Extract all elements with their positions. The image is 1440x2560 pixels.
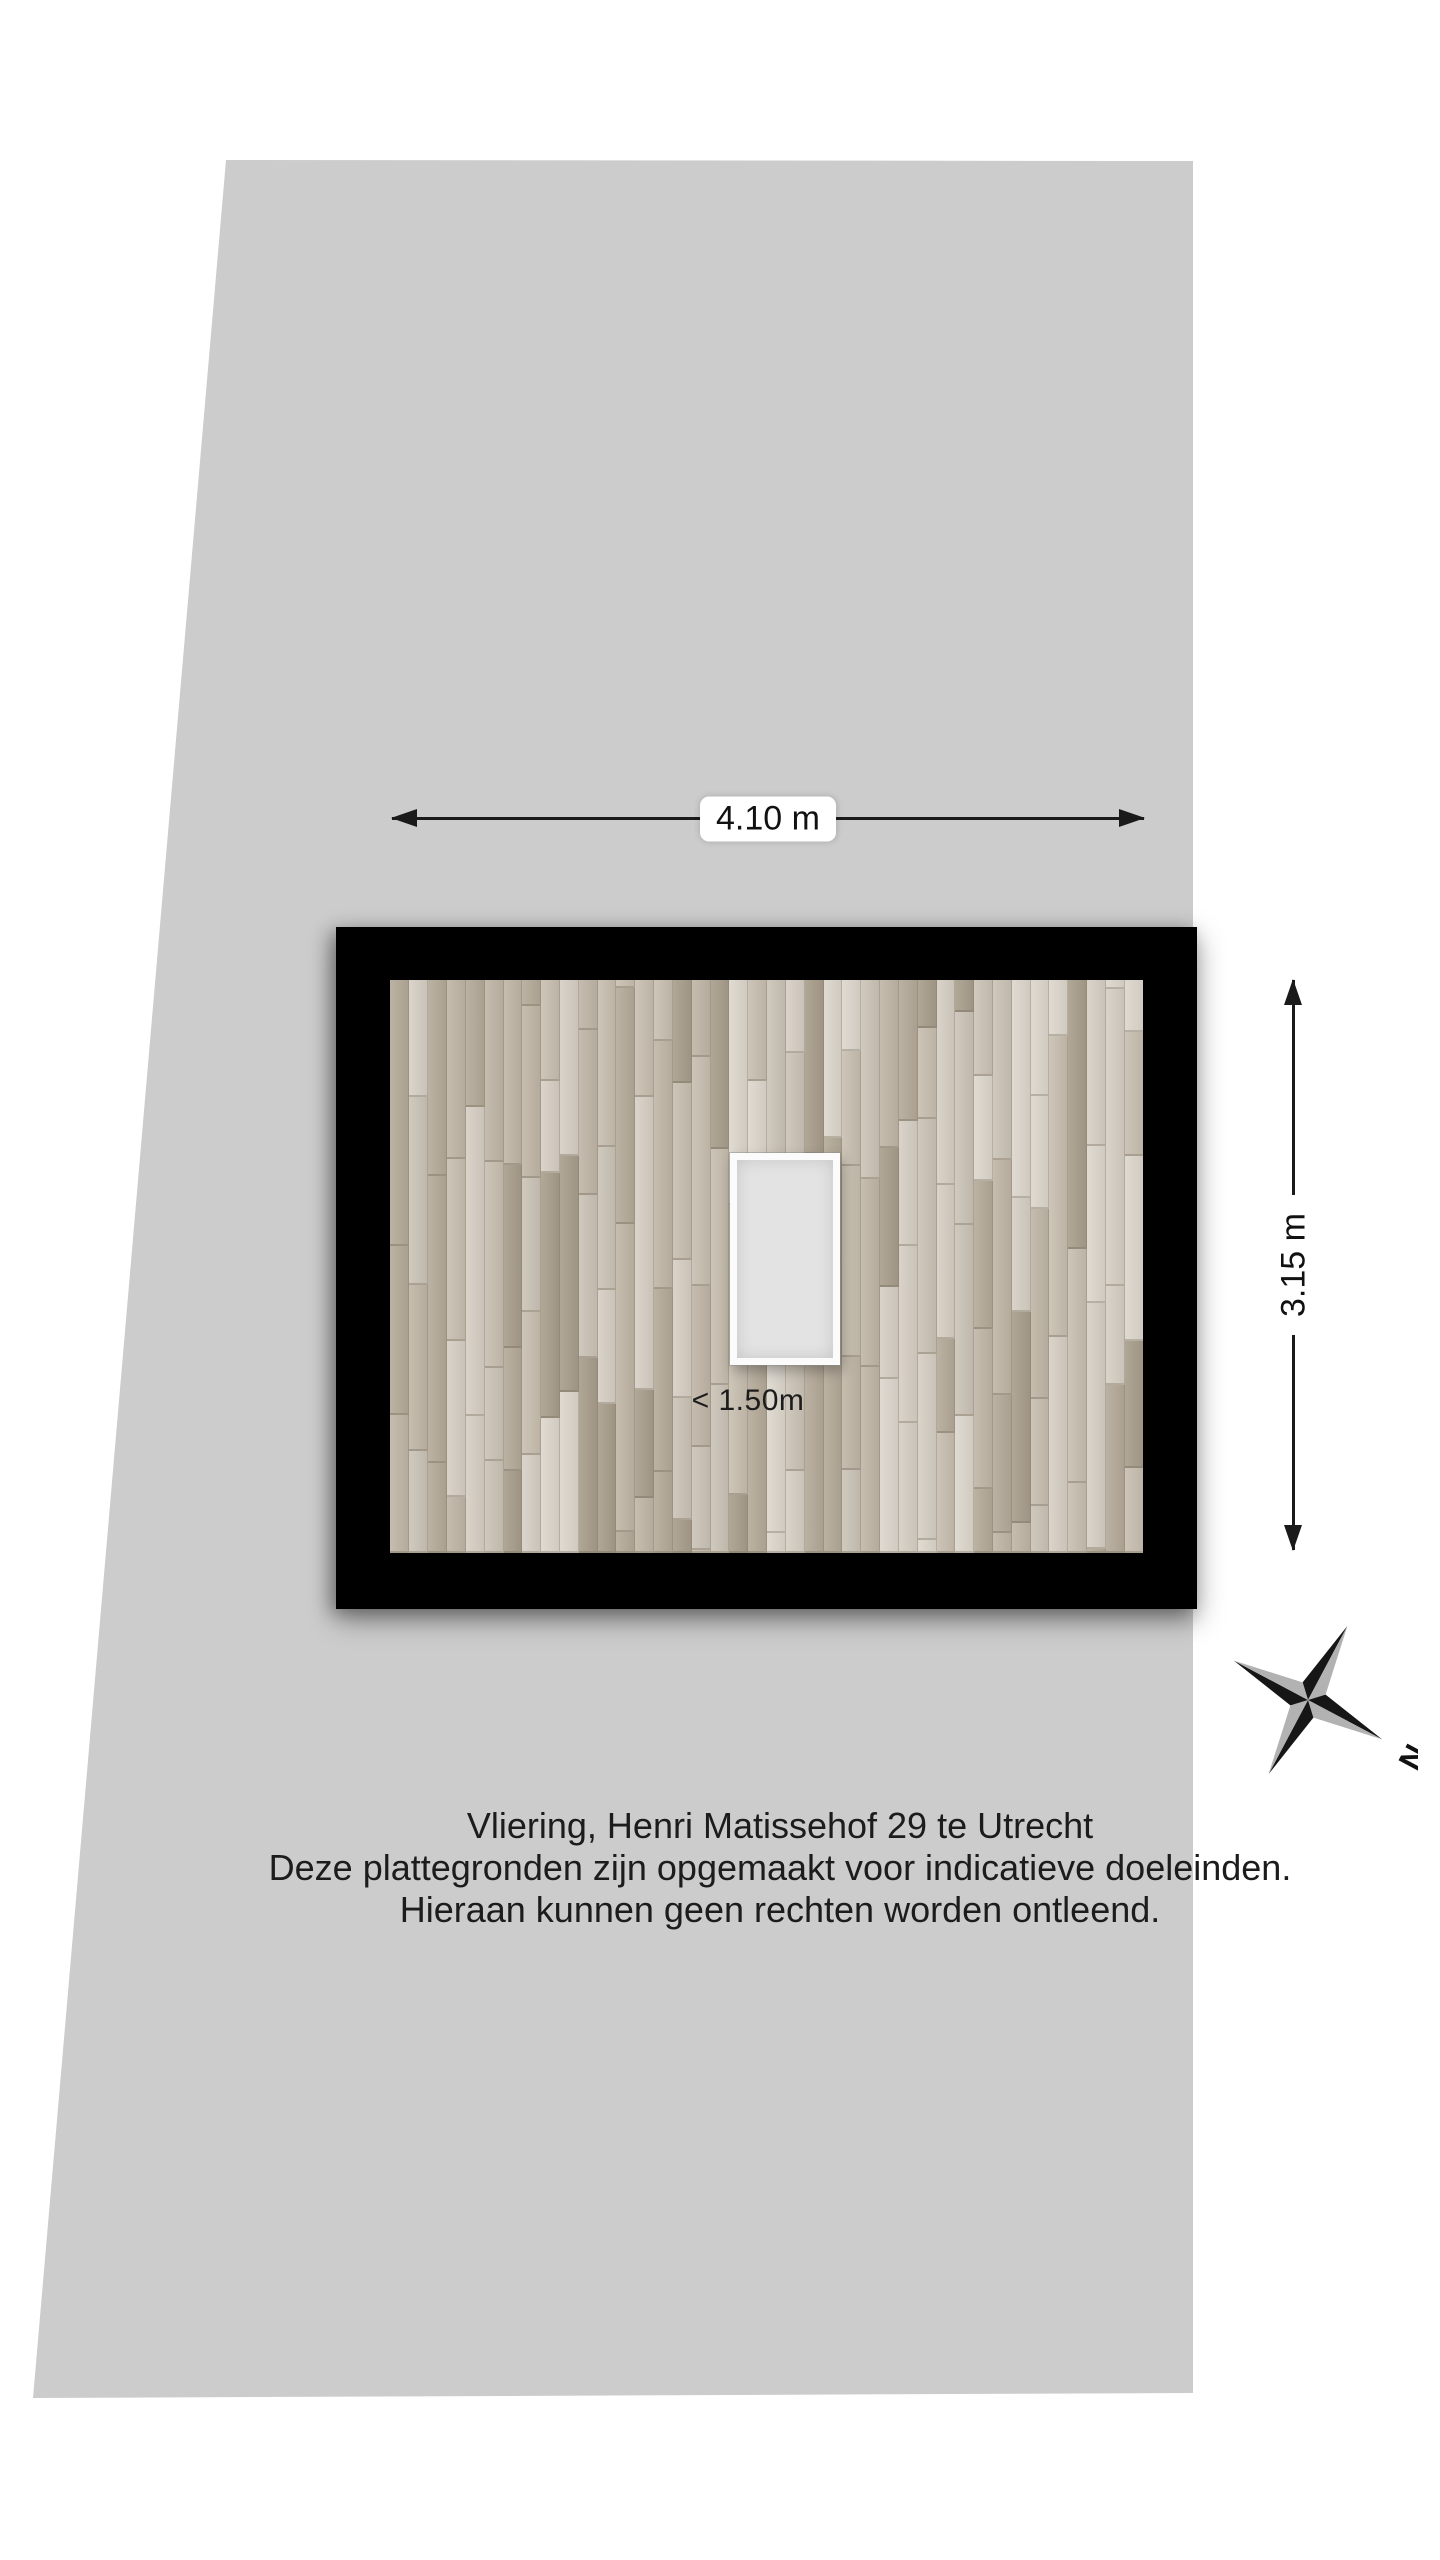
dimension-width-label: 4.10 m: [700, 796, 836, 841]
floor-plank: [541, 980, 560, 1081]
floor-plank: [1124, 1468, 1143, 1553]
floor-plank-sheen: [974, 1076, 992, 1179]
floor-plank-sheen: [541, 1173, 559, 1416]
floor-plank-sheen: [672, 1083, 690, 1257]
floor-plank-sheen: [842, 1470, 860, 1551]
footer-disclaimer: Vliering, Henri Matissehof 29 te Utrecht…: [269, 1805, 1292, 1931]
arrowhead-right-icon: [1119, 809, 1145, 827]
floor-plank-sheen: [842, 1357, 860, 1468]
floor-plank: [522, 1312, 541, 1455]
floor-plank-sheen: [578, 1358, 596, 1551]
floor-plank: [710, 980, 729, 1149]
north-label: N: [1391, 1739, 1418, 1776]
floor-plank-sheen: [992, 1160, 1010, 1393]
floor-plank-sheen: [691, 1550, 709, 1551]
floorplan-page: < 1.50m 4.10 m 3.15 m N Vliering, Henri …: [0, 0, 1440, 2560]
floor-plank: [484, 980, 503, 1162]
floor-plank-sheen: [729, 1495, 747, 1551]
floor-plank-sheen: [936, 1433, 954, 1551]
floor-plank: [1068, 980, 1087, 1249]
floor-plank-sheen: [710, 980, 728, 1147]
arrowhead-up-icon: [1284, 979, 1302, 1005]
floor-plank: [842, 1166, 861, 1357]
floor-plank-sheen: [1087, 1549, 1105, 1551]
floor-plank: [823, 980, 842, 1138]
floor-plank-sheen: [390, 1415, 408, 1551]
floor-plank: [992, 1395, 1011, 1534]
floor-plank: [879, 1148, 898, 1286]
floor-plank-sheen: [1105, 980, 1123, 987]
floor-plank-sheen: [654, 980, 672, 1039]
floor-plank: [409, 1285, 428, 1451]
floor-plank: [409, 1097, 428, 1286]
floor-plank-sheen: [1068, 980, 1086, 1247]
floor-plank-sheen: [955, 1416, 973, 1551]
floor: < 1.50m: [390, 980, 1143, 1553]
floor-plank-sheen: [616, 1224, 634, 1529]
floor-plank-sheen: [823, 980, 841, 1136]
floor-plank: [597, 1147, 616, 1290]
footer-line-title: Vliering, Henri Matissehof 29 te Utrecht: [269, 1805, 1292, 1847]
floor-plank: [691, 980, 710, 1057]
floor-plank-sheen: [785, 1471, 803, 1551]
floor-plank: [992, 1160, 1011, 1395]
floor-plank: [1124, 1341, 1143, 1468]
floor-plank-sheen: [616, 988, 634, 1223]
floor-plank-sheen: [1049, 1036, 1067, 1335]
floor-plank-sheen: [409, 1097, 427, 1284]
floor-plank-sheen: [917, 1540, 935, 1551]
floor-plank: [917, 1354, 936, 1540]
floor-plank: [861, 980, 880, 1179]
floor-plank-sheen: [446, 980, 464, 1157]
floor-plank: [917, 1119, 936, 1354]
floor-plank: [974, 1329, 993, 1489]
floor-plank: [635, 1097, 654, 1390]
floor-plank: [672, 1398, 691, 1520]
floor-plank: [541, 1418, 560, 1553]
floor-plank: [1011, 1198, 1030, 1312]
floor-plank: [503, 980, 522, 1165]
floor-plank: [541, 1081, 560, 1173]
floor-plank-sheen: [691, 980, 709, 1055]
floor-plank: [936, 1433, 955, 1553]
floor-plank: [578, 980, 597, 1030]
floor-plank: [503, 1348, 522, 1471]
floor-plank: [1105, 989, 1124, 1285]
floor-plank: [842, 1357, 861, 1470]
floor-plank-sheen: [635, 1390, 653, 1496]
floor-plank: [992, 980, 1011, 1160]
floor-plank-sheen: [842, 1051, 860, 1164]
floor-plank: [484, 1368, 503, 1461]
floor-plank-sheen: [1030, 1096, 1048, 1207]
floor-plank-sheen: [503, 980, 521, 1163]
floor-plank: [917, 1028, 936, 1120]
floor-plank: [1011, 1523, 1030, 1553]
floor-plank: [861, 1367, 880, 1553]
floor-plank-sheen: [1124, 980, 1142, 1030]
floor-plank-sheen: [1068, 1249, 1086, 1480]
floor-plank: [955, 980, 974, 1012]
floor-plank: [465, 1416, 484, 1553]
floor-plank-sheen: [654, 1289, 672, 1471]
floor-plank-sheen: [974, 1181, 992, 1327]
floor-plank-sheen: [917, 980, 935, 1026]
floor-plank-sheen: [785, 980, 803, 1051]
floor-plank-sheen: [559, 1392, 577, 1551]
floor-plank: [597, 1290, 616, 1404]
floor-plank: [428, 980, 447, 1176]
floor-plank: [1030, 980, 1049, 1096]
floor-plank-sheen: [597, 980, 615, 1145]
arrowhead-down-icon: [1284, 1525, 1302, 1551]
floor-plank-sheen: [955, 1225, 973, 1414]
floor-plank: [1030, 1506, 1049, 1553]
floor-plank: [804, 980, 823, 1154]
floor-plank-sheen: [1124, 1156, 1142, 1339]
floor-plank-sheen: [484, 1368, 502, 1459]
footer-line-indicative: Deze plattegronden zijn opgemaakt voor i…: [269, 1847, 1292, 1889]
floor-plank: [974, 980, 993, 1076]
floor-plank: [767, 1533, 786, 1553]
floor-plank: [1087, 1303, 1106, 1550]
floor-plank: [1087, 1549, 1106, 1553]
floor-plank-sheen: [635, 1097, 653, 1388]
floor-plank-sheen: [917, 1119, 935, 1352]
floor-plank: [1030, 1399, 1049, 1506]
floor-plank-sheen: [1087, 980, 1105, 1144]
arrowhead-left-icon: [391, 809, 417, 827]
floor-plank: [748, 980, 767, 1081]
floor-plank-sheen: [1011, 1523, 1029, 1551]
floor-plank-sheen: [992, 1395, 1010, 1532]
floor-plank: [446, 1159, 465, 1341]
floor-plank: [654, 1289, 673, 1473]
floor-plank-sheen: [1124, 1032, 1142, 1154]
floor-plank: [1011, 980, 1030, 1198]
floor-plank: [917, 980, 936, 1028]
floor-plank: [842, 1470, 861, 1553]
floor-plank: [879, 1287, 898, 1379]
floor-plank: [1124, 1156, 1143, 1341]
floor-plank: [522, 1455, 541, 1553]
floor-plank-sheen: [1105, 1385, 1123, 1551]
floor-plank-sheen: [861, 980, 879, 1177]
floor-plank-sheen: [409, 1451, 427, 1551]
floor-plank-sheen: [936, 1185, 954, 1338]
floor-plank-sheen: [879, 1148, 897, 1284]
floor-plank: [804, 1353, 823, 1553]
floor-plank: [1049, 1036, 1068, 1337]
floor-plank: [974, 1489, 993, 1553]
floor-plank-sheen: [898, 1246, 916, 1421]
floor-plank-sheen: [917, 1354, 935, 1538]
floor-plank-sheen: [522, 980, 540, 1004]
floor-plank-sheen: [465, 1416, 483, 1551]
floor-plank-sheen: [428, 1463, 446, 1551]
floor-plank: [1049, 980, 1068, 1036]
floor-plank-sheen: [672, 1260, 690, 1396]
floor-plank-sheen: [465, 980, 483, 1105]
floor-plank-sheen: [522, 1312, 540, 1453]
floor-plank: [1068, 1249, 1087, 1482]
floor-plank-sheen: [1030, 980, 1048, 1094]
room-attic: < 1.50m: [336, 927, 1197, 1609]
floor-plank: [1030, 1096, 1049, 1209]
floor-plank: [578, 1358, 597, 1553]
floor-plank: [522, 1178, 541, 1312]
floor-plank-sheen: [409, 1285, 427, 1449]
floor-plank: [691, 1550, 710, 1553]
floor-plank: [1087, 980, 1106, 1146]
floor-plank-sheen: [992, 1533, 1010, 1551]
floor-plank-sheen: [1105, 1286, 1123, 1383]
floor-plank-sheen: [616, 980, 634, 986]
floor-plank: [541, 1173, 560, 1418]
floor-plank: [390, 1246, 409, 1415]
floor-plank: [578, 1195, 597, 1358]
floor-plank: [1049, 1337, 1068, 1553]
floor-plank-sheen: [936, 1339, 954, 1430]
floor-plank: [465, 1107, 484, 1417]
floor-plank: [691, 1447, 710, 1550]
floor-plank: [672, 980, 691, 1083]
floor-plank: [484, 1162, 503, 1368]
floor-plank-sheen: [974, 1489, 992, 1551]
floor-plank: [672, 1520, 691, 1553]
floor-plank-sheen: [1030, 1399, 1048, 1504]
floor-plank-sheen: [1030, 1506, 1048, 1551]
floor-plank: [974, 1181, 993, 1329]
floor-plank-sheen: [635, 1498, 653, 1551]
floor-plank: [917, 1540, 936, 1553]
floor-plank-sheen: [955, 1012, 973, 1223]
floor-plank: [654, 1472, 673, 1553]
floor-plank: [898, 1246, 917, 1423]
floor-plank-sheen: [522, 1178, 540, 1310]
floor-plank: [1124, 1032, 1143, 1156]
floor-plank: [898, 1423, 917, 1553]
floor-plank: [597, 980, 616, 1147]
floor-plank: [955, 1225, 974, 1416]
floor-plank-sheen: [578, 1030, 596, 1193]
floor-plank-sheen: [578, 980, 596, 1028]
floor-plank-sheen: [672, 1398, 690, 1518]
floor-plank-sheen: [1049, 980, 1067, 1034]
floor-plank-sheen: [559, 1156, 577, 1390]
floor-plank-sheen: [390, 980, 408, 1244]
floor-plank: [428, 1176, 447, 1463]
floor-plank: [879, 1379, 898, 1553]
floor-plank: [785, 1471, 804, 1553]
floor-plank-sheen: [578, 1195, 596, 1356]
floor-plank: [955, 1012, 974, 1225]
floor-plank: [1011, 1312, 1030, 1523]
floor-plank-sheen: [767, 1533, 785, 1551]
floor-plank-sheen: [1068, 1483, 1086, 1551]
floor-plank-sheen: [879, 1379, 897, 1551]
floor-plank: [465, 980, 484, 1107]
floor-plank-sheen: [898, 1423, 916, 1551]
floor-plank-sheen: [503, 1348, 521, 1469]
floor-plank-sheen: [541, 1081, 559, 1171]
floor-plank-sheen: [446, 1341, 464, 1495]
dimension-height-line: 3.15 m: [1292, 980, 1295, 1550]
floor-plank: [1030, 1209, 1049, 1399]
compass-rose-icon: N: [1198, 1590, 1418, 1810]
floor-plank-sheen: [691, 1447, 709, 1548]
floor-plank-sheen: [861, 1367, 879, 1551]
floor-plank: [842, 980, 861, 1051]
floor-plank: [616, 1532, 635, 1553]
floor-plank: [503, 1471, 522, 1553]
floor-plank-sheen: [710, 1149, 728, 1383]
floor-plank-sheen: [917, 1028, 935, 1118]
floor-plank-sheen: [1049, 1337, 1067, 1551]
floor-plank: [428, 1463, 447, 1553]
floor-plank: [936, 1185, 955, 1340]
floor-plank: [936, 1339, 955, 1432]
floor-plank-sheen: [541, 980, 559, 1079]
floor-plank: [390, 980, 409, 1246]
dimension-height-label: 3.15 m: [1272, 1195, 1315, 1335]
floor-plank-sheen: [541, 1418, 559, 1551]
floor-plank-sheen: [1105, 989, 1123, 1283]
floor-plank-sheen: [804, 980, 822, 1152]
floor-plank-sheen: [597, 1404, 615, 1551]
floor-plank-sheen: [1087, 1303, 1105, 1548]
floor-plank: [672, 1083, 691, 1259]
floor-plank: [672, 1260, 691, 1398]
floor-plank: [691, 1286, 710, 1447]
floor-plank-sheen: [597, 1147, 615, 1288]
floor-plank: [635, 980, 654, 1097]
floor-plank: [559, 980, 578, 1156]
floor-plank: [842, 1051, 861, 1166]
floor-plank-sheen: [936, 980, 954, 1183]
floor-plank-sheen: [409, 980, 427, 1095]
floor-plank: [1068, 1483, 1087, 1553]
floor-plank: [710, 1149, 729, 1385]
floor-plank: [1124, 980, 1143, 1032]
floor-plank: [898, 1121, 917, 1246]
floor-plank-sheen: [1011, 980, 1029, 1196]
dimension-width-line: 4.10 m: [392, 817, 1144, 820]
floor-plank-sheen: [1087, 1146, 1105, 1301]
floor-plank-sheen: [503, 1165, 521, 1346]
floor-plank-sheen: [879, 1287, 897, 1377]
floor-plank: [522, 1006, 541, 1178]
floor-plank-sheen: [428, 980, 446, 1174]
floor-plank: [1105, 980, 1124, 989]
floor-plank: [635, 1390, 654, 1498]
floor-plank: [1105, 1286, 1124, 1385]
floor-plank-sheen: [654, 1041, 672, 1286]
floor-plank-sheen: [672, 980, 690, 1081]
floor-plank: [522, 980, 541, 1006]
floor-plank-sheen: [992, 980, 1010, 1158]
floor-plank-sheen: [446, 1159, 464, 1339]
floor-plank: [446, 1497, 465, 1553]
floor-plank: [578, 1030, 597, 1195]
floor-plank-sheen: [390, 1246, 408, 1413]
floor-plank-sheen: [842, 1166, 860, 1355]
floor-plank-sheen: [1011, 1312, 1029, 1521]
floor-plank-sheen: [898, 980, 916, 1119]
hatch-opening: [730, 1153, 840, 1365]
floor-plank: [729, 1495, 748, 1553]
floor-plank: [616, 1224, 635, 1531]
floor-plank-sheen: [428, 1176, 446, 1461]
floor-plank: [992, 1533, 1011, 1553]
floor-plank: [898, 980, 917, 1121]
floor-plank-sheen: [861, 1179, 879, 1364]
floor-plank: [446, 1341, 465, 1497]
floor-plank-sheen: [842, 980, 860, 1049]
floor-plank-sheen: [522, 1455, 540, 1551]
floor-plank-sheen: [522, 1006, 540, 1176]
floor-plank-sheen: [879, 980, 897, 1146]
floor-plank-sheen: [748, 980, 766, 1079]
floor-plank: [936, 980, 955, 1185]
floor-plank-sheen: [1124, 1341, 1142, 1466]
floor-plank: [1105, 1385, 1124, 1553]
floor-plank-sheen: [635, 980, 653, 1095]
floor-plank: [559, 1156, 578, 1392]
floor-plank-sheen: [691, 1057, 709, 1284]
floor-plank-sheen: [654, 1472, 672, 1551]
floor-plank-sheen: [484, 1461, 502, 1551]
floor-plank-sheen: [898, 1121, 916, 1244]
floor-plank: [390, 1415, 409, 1553]
floor-plank-sheen: [503, 1471, 521, 1551]
floor-plank-sheen: [955, 980, 973, 1010]
floor-plank-sheen: [484, 1162, 502, 1366]
floor-plank: [879, 980, 898, 1148]
floor-plank-sheen: [974, 980, 992, 1074]
floor-plank: [861, 1179, 880, 1366]
floor-plank: [616, 988, 635, 1225]
floor-plank: [597, 1404, 616, 1553]
footer-line-rights: Hieraan kunnen geen rechten worden ontle…: [269, 1889, 1292, 1931]
floor-plank-sheen: [691, 1286, 709, 1445]
floor-plank: [559, 1392, 578, 1553]
floor-plank-sheen: [597, 1290, 615, 1402]
floor-plank-sheen: [974, 1329, 992, 1487]
floor-plank: [409, 980, 428, 1097]
floor-plank: [616, 980, 635, 988]
floor-plank: [503, 1165, 522, 1348]
floor-plank-sheen: [804, 1353, 822, 1551]
floor-plank-sheen: [1124, 1468, 1142, 1551]
floor-plank-sheen: [465, 1107, 483, 1415]
floor-plank: [484, 1461, 503, 1553]
floor-plank: [409, 1451, 428, 1553]
floor-plank-sheen: [616, 1532, 634, 1551]
floor-plank-sheen: [484, 980, 502, 1160]
floor-plank: [955, 1416, 974, 1553]
floor-plank: [974, 1076, 993, 1181]
floor-plank: [654, 1041, 673, 1288]
floor-plank-sheen: [1030, 1209, 1048, 1397]
floor-plank-sheen: [1011, 1198, 1029, 1310]
floor-plank: [785, 980, 804, 1053]
floor-plank-sheen: [559, 980, 577, 1154]
floor-plank-sheen: [446, 1497, 464, 1551]
floor-plank: [691, 1057, 710, 1286]
floor-plank: [1087, 1146, 1106, 1303]
